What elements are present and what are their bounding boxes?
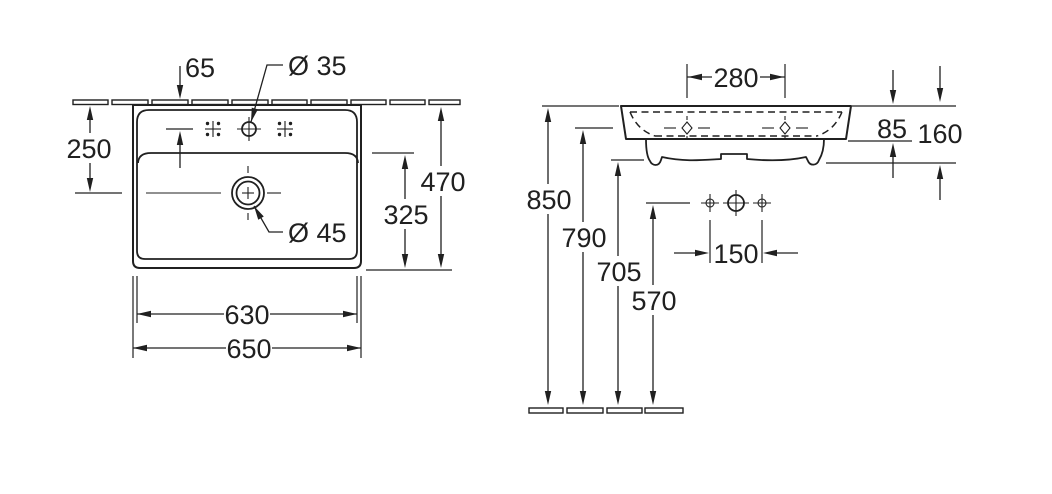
wall-segment	[351, 100, 386, 105]
siphon-cover-outline	[646, 139, 824, 165]
centermark-dot	[289, 122, 292, 125]
fixing-hole-center	[723, 190, 749, 216]
centermark-dot	[278, 133, 281, 136]
arrowhead	[580, 130, 586, 144]
arrowhead	[937, 88, 943, 102]
arrowhead	[545, 108, 551, 122]
fixing-hole-right	[753, 194, 771, 212]
dim-250-label: 250	[66, 134, 111, 164]
arrowhead	[545, 391, 551, 405]
dim-470-label: 470	[420, 167, 465, 197]
dim-lower-hole-spacing: 150	[674, 220, 798, 269]
diamond-hole	[682, 122, 692, 134]
floor-segment	[567, 408, 603, 413]
arrowhead	[763, 250, 777, 256]
arrowhead	[438, 254, 444, 268]
arrowhead	[438, 107, 444, 121]
arrowhead	[343, 311, 357, 317]
arrowhead	[402, 155, 408, 169]
floor-segment	[529, 408, 563, 413]
diamond-hole	[780, 122, 790, 134]
dim-570-label: 570	[631, 286, 676, 316]
dim-drain-setback: 250	[66, 106, 122, 193]
front-view: 280 85 160 850	[525, 63, 963, 413]
arrowhead	[580, 391, 586, 405]
arrowhead	[688, 74, 702, 80]
arrowhead	[177, 131, 183, 145]
faucet-hole-center	[237, 117, 261, 141]
fixture-body-outline	[621, 106, 851, 139]
dim-705-label: 705	[596, 257, 641, 287]
dim-630-label: 630	[224, 300, 269, 330]
arrowhead	[347, 345, 361, 351]
dim-overall-depth: 470	[420, 107, 467, 268]
dim-faucet-dia: Ø 35	[248, 51, 347, 123]
lower-fixing-holes	[701, 190, 771, 216]
arrowhead	[890, 90, 896, 104]
dim-325-label: 325	[383, 200, 428, 230]
arrowhead	[87, 106, 93, 120]
dim-upper-hole-spacing: 280	[687, 63, 785, 98]
arrowhead	[890, 143, 896, 157]
wall-segment	[272, 100, 307, 105]
arrowhead	[615, 162, 621, 176]
arrowhead	[87, 178, 93, 192]
leader-line	[251, 65, 283, 122]
wall-segment	[429, 100, 460, 105]
fixing-hole-left	[701, 194, 719, 212]
centermark-dot	[217, 122, 220, 125]
dim-drain-dia: Ø 45	[251, 204, 346, 248]
mounting-hole-right	[762, 116, 808, 140]
dim-dia45-label: Ø 45	[288, 218, 347, 248]
arrowhead	[650, 205, 656, 219]
arrowhead	[937, 165, 943, 179]
arrowhead	[695, 250, 709, 256]
dim-790-label: 790	[561, 223, 606, 253]
bowl-back-edge	[138, 153, 358, 163]
wall-hatch	[73, 100, 460, 105]
wall-segment	[390, 100, 425, 105]
technical-drawing-canvas: 65 Ø 35 250 470	[0, 0, 1052, 494]
wall-segment	[152, 100, 188, 105]
centermark-dot	[289, 133, 292, 136]
dim-lower-holes-floor-height: 570	[631, 203, 690, 405]
dim-850-label: 850	[526, 185, 571, 215]
arrowhead	[615, 391, 621, 405]
dim-150-label: 150	[713, 239, 758, 269]
centermark-dot	[206, 122, 209, 125]
arrowhead	[650, 391, 656, 405]
dim-160-label: 160	[917, 119, 962, 149]
dim-650-label: 650	[226, 334, 271, 364]
centermark-dot	[206, 133, 209, 136]
centermark-dot	[217, 133, 220, 136]
wall-segment	[192, 100, 228, 105]
washbasin-dimension-drawing: 65 Ø 35 250 470	[0, 0, 1052, 494]
dim-inner-width: 630	[137, 276, 357, 330]
wall-segment	[112, 100, 148, 105]
wall-segment	[311, 100, 347, 105]
dim-body-height: 160	[917, 66, 962, 200]
dim-rim-height: 85	[877, 70, 907, 178]
hidden-bowl-dashed	[630, 112, 842, 136]
centermark-dot	[278, 122, 281, 125]
arrowhead	[402, 254, 408, 268]
wall-segment	[73, 100, 108, 105]
top-view: 65 Ø 35 250 470	[66, 51, 467, 364]
dim-body-bottom-floor-height: 705	[595, 160, 644, 405]
arrowhead	[137, 311, 151, 317]
floor-segment	[607, 408, 642, 413]
wall-segment	[232, 100, 268, 105]
floor-hatch	[529, 408, 683, 413]
dim-85-label: 85	[877, 114, 907, 144]
arrowhead	[177, 85, 183, 99]
faucet-hole-left-mark	[205, 121, 221, 137]
dim-65-label: 65	[185, 53, 215, 83]
floor-segment	[645, 408, 683, 413]
dim-dia35-label: Ø 35	[288, 51, 347, 81]
dim-rim-floor-height: 850	[525, 106, 619, 405]
dim-280-label: 280	[713, 63, 758, 93]
arrowhead	[133, 345, 147, 351]
faucet-hole-right-mark	[277, 121, 293, 137]
arrowhead	[770, 74, 784, 80]
